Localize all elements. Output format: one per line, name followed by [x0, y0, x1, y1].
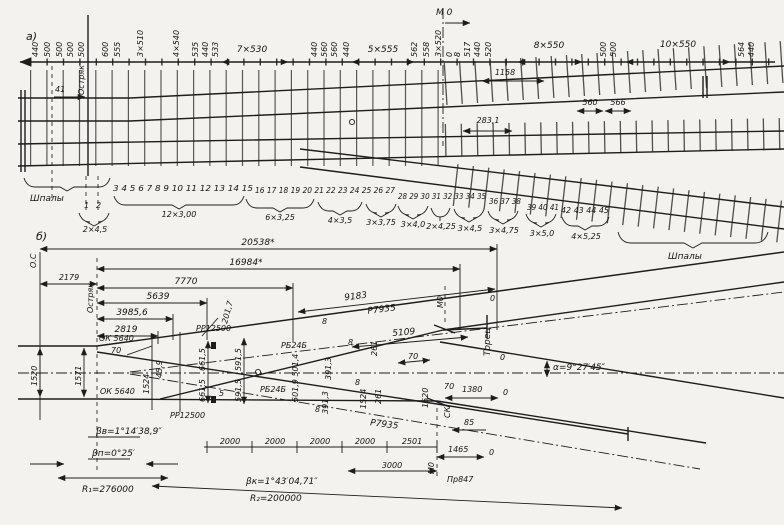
dim-70-right: 70 [444, 382, 454, 391]
gauge-1520: 1520 [30, 366, 39, 386]
spacing-label: 440 [31, 42, 40, 57]
mo-lower: М0 [427, 462, 436, 474]
os-label: О.С [29, 253, 38, 268]
tie-number: 2 [96, 201, 101, 210]
spacing-group-label: 3×520 [434, 30, 443, 57]
spacing-label: 560 [330, 42, 339, 57]
spacing-label: 500 [77, 42, 86, 57]
spacing-label: 600 [101, 42, 110, 57]
tie-group-label: 2×4,25 [426, 222, 456, 231]
dim-3000: 3000 [382, 461, 402, 470]
dim-2000: 2000 [265, 437, 285, 446]
tie-group-label: 2×4,5 [83, 225, 108, 234]
tie-group-label: 3×4,5 [458, 224, 483, 233]
r1-label: R₁=276000 [82, 485, 134, 495]
alpha-label: α=9°27′45″ [553, 363, 606, 373]
dim-261a: 261 [370, 341, 379, 356]
dims-2000-row: 2000 2000 2000 2000 2501 [204, 437, 437, 453]
dim-201-7: 201,7 [220, 299, 235, 324]
spacing-group-label: 4×540 [172, 30, 181, 57]
spacing-label: 500 [66, 42, 75, 57]
spacing-label: 440 [201, 42, 210, 57]
dim-1465: 1465 [448, 445, 468, 454]
spacing-label: 440 [310, 42, 319, 57]
dim-70-mid: 70 [408, 352, 418, 361]
mo-upper: М0 [436, 296, 445, 308]
frog-center-label: М 0 [436, 8, 453, 18]
tie-number-row: 39 40 41 [527, 203, 559, 212]
gap-8b: 8 [348, 338, 353, 347]
dim-261b: 261 [374, 389, 383, 404]
dim-9183: 9183 [344, 291, 368, 304]
tie-number-row: 36 37 38 [489, 197, 521, 206]
spacing-label: 500 [609, 42, 618, 57]
tie-group-label: 6×3,25 [265, 213, 295, 222]
rb-lower: РБ24Б [260, 385, 286, 394]
part-a-label: а) [26, 30, 37, 43]
r2-label: R₂=200000 [250, 494, 302, 504]
zero-c: 0 [503, 388, 508, 397]
ok-70: 70 [111, 346, 121, 355]
spacing-label: 500 [599, 42, 608, 57]
part-a: а) [18, 8, 784, 262]
sk-label: СК [443, 406, 452, 418]
dim-661-5b: 661,5 [198, 379, 207, 402]
dim-45-9: 45,9 [155, 360, 164, 378]
dim-5639: 5639 [147, 292, 170, 302]
gap-8c: 8 [355, 378, 360, 387]
part-b-label: б) [36, 230, 47, 243]
blade-label-b: Остряк [86, 283, 95, 313]
tie-number-row: 3 4 5 6 7 8 9 10 11 12 13 14 15 [113, 184, 253, 193]
gap-5: 5 [219, 389, 224, 398]
dim-661-5a: 661,5 [198, 348, 207, 371]
zero-a: 0 [490, 294, 495, 303]
spacing-label: 562 [410, 42, 419, 57]
tie-group-label: 3×4,75 [489, 226, 519, 235]
dims-top: 20538* 16984* 7770 5639 3985,6 2819 2179… [40, 238, 497, 336]
spacing-label: 517 [463, 41, 472, 57]
dim-16984: 16984* [229, 258, 263, 268]
dim-391-3a: 391,3 [324, 357, 333, 380]
tie-group-label: 4×5,25 [571, 232, 601, 241]
dim-283: 283,1 [477, 116, 500, 125]
dim-1158: 1158 [495, 68, 515, 77]
dim-2000: 2000 [220, 437, 240, 446]
dim-1380: 1380 [462, 385, 482, 394]
dim-9183-line [298, 289, 495, 312]
spacing-label: 520 [484, 42, 493, 57]
dim-1571: 1571 [74, 366, 83, 386]
dim-20538: 20538* [241, 238, 275, 248]
rb-upper: РБ24Б [281, 341, 307, 350]
dim-2179: 2179 [59, 273, 79, 282]
dim-7770: 7770 [175, 277, 198, 287]
dim-5109: 5109 [392, 327, 416, 339]
spacing-group-label: 3×510 [136, 30, 145, 57]
spacing-label: 560 [320, 42, 329, 57]
spacing-label: 555 [113, 42, 122, 57]
sleepers-right-label: Шпалы [668, 252, 702, 262]
gap-8a: 8 [322, 317, 327, 326]
gap-8d: 8 [315, 405, 320, 414]
tie-group-label: 3×5,0 [530, 229, 555, 238]
spacing-label: 500 [43, 42, 52, 57]
dim-2501: 2501 [402, 437, 422, 446]
spacing-label: 440 [747, 42, 756, 57]
tie-group-label: 4×3,5 [328, 216, 353, 225]
rail-upper: Р7935 [367, 303, 397, 316]
dim-391-3b: 391,3 [321, 391, 330, 414]
turnout-drawing: а) [0, 0, 784, 525]
rr-lower: РР12500 [170, 411, 205, 420]
spacing-label: 500 [55, 42, 64, 57]
r2-line [152, 486, 622, 508]
dim-501: 501,9 501,4 [291, 354, 300, 402]
blade-label: Остряк [77, 65, 86, 95]
tie-number-row: 42 43 44 45 [561, 206, 609, 215]
dim-591-5a: 591,5 [234, 348, 243, 371]
drawing-page: а) [0, 0, 784, 525]
zero-b: 0 [500, 353, 505, 362]
tie-number-row: 16 17 18 19 20 21 22 23 24 25 26 27 [255, 186, 396, 195]
beta-v: βв=1°14′38,9″ [95, 427, 162, 437]
dim-566: 566 [610, 98, 625, 107]
span-label: 10×550 [660, 40, 696, 50]
zero-d: 0 [489, 448, 494, 457]
dim-1524-right: 1524 [359, 389, 368, 409]
dim-1520-right: 1520 [421, 388, 430, 408]
dim-85: 85 [464, 418, 474, 427]
spacing-label: 8 [453, 52, 462, 57]
pr847-label: Пр847 [447, 475, 474, 484]
sleepers-left-label: Шпалы [30, 194, 64, 204]
tie-number: 1 [84, 201, 89, 210]
beta-p: βп=0°25′ [91, 449, 135, 459]
beta-k: βк=1°43′04,71″ [245, 477, 318, 487]
dim-1524-left: 1524 [142, 374, 151, 394]
spacing-label: 440 [342, 42, 351, 57]
span-label: 8×550 [534, 41, 565, 51]
span-label: 5×555 [368, 45, 399, 55]
tie-number-row: 28 29 30 31 32 33 34 35 [398, 192, 486, 201]
blade-dim: 41 [55, 85, 65, 94]
dim-2000: 2000 [355, 437, 375, 446]
ok-lower: ОК 5640 [100, 387, 135, 396]
torec-label: Торец [483, 328, 493, 356]
span-label: 7×530 [237, 45, 268, 55]
tie-group-label: 12×3,00 [162, 210, 197, 219]
part-b: б) О.С Остряк [18, 230, 784, 508]
tie-group-label: 3×3,75 [366, 218, 396, 227]
rail-lower: Р7935 [370, 418, 400, 431]
spacing-label: 533 [211, 42, 220, 57]
ok-upper: ОК 5640 [99, 334, 134, 343]
spacing-label: 558 [422, 42, 431, 57]
spacing-label: 535 [191, 42, 200, 57]
rr-upper: РР12500 [196, 324, 231, 333]
spacing-label: 440 [473, 42, 482, 57]
tie-group-label: 3×4,0 [401, 220, 426, 229]
dim-2000: 2000 [310, 437, 330, 446]
dim-560: 560 [582, 98, 597, 107]
spacing-label: 564 [737, 42, 746, 57]
dim-3985: 3985,6 [116, 308, 148, 318]
dim-591-5b: 591,5 [234, 379, 243, 402]
